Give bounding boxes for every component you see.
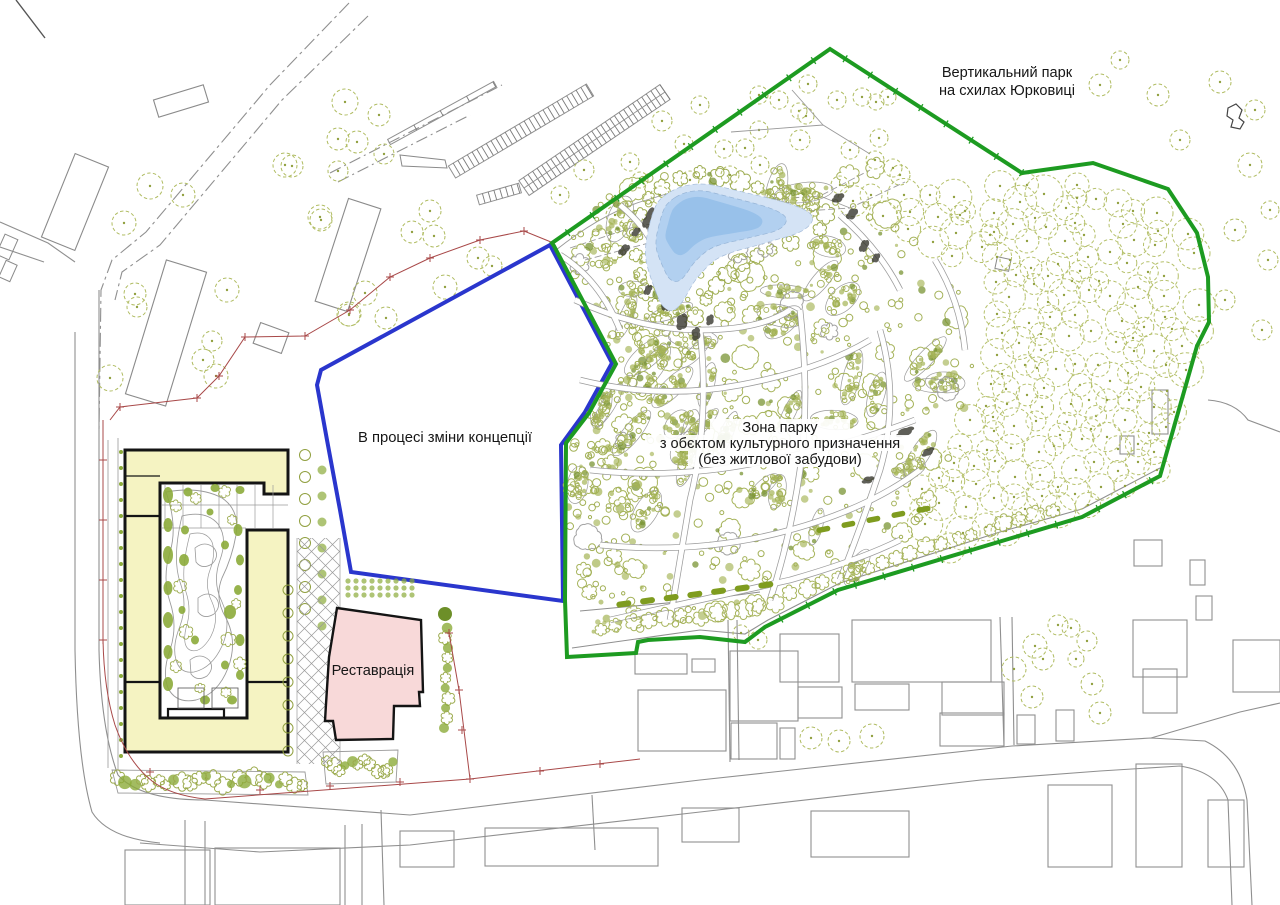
svg-text:з обєктом культурного призначе: з обєктом культурного призначення — [660, 436, 900, 452]
svg-text:Реставрація: Реставрація — [332, 663, 415, 679]
svg-text:(без житлової забудови): (без житлової забудови) — [698, 452, 862, 468]
svg-text:Зона парку: Зона парку — [742, 420, 818, 436]
svg-text:на схилах Юрковиці: на схилах Юрковиці — [939, 83, 1075, 99]
svg-text:В процесі зміни концепції: В процесі зміни концепції — [358, 430, 532, 446]
svg-text:Вертикальний парк: Вертикальний парк — [942, 65, 1073, 81]
